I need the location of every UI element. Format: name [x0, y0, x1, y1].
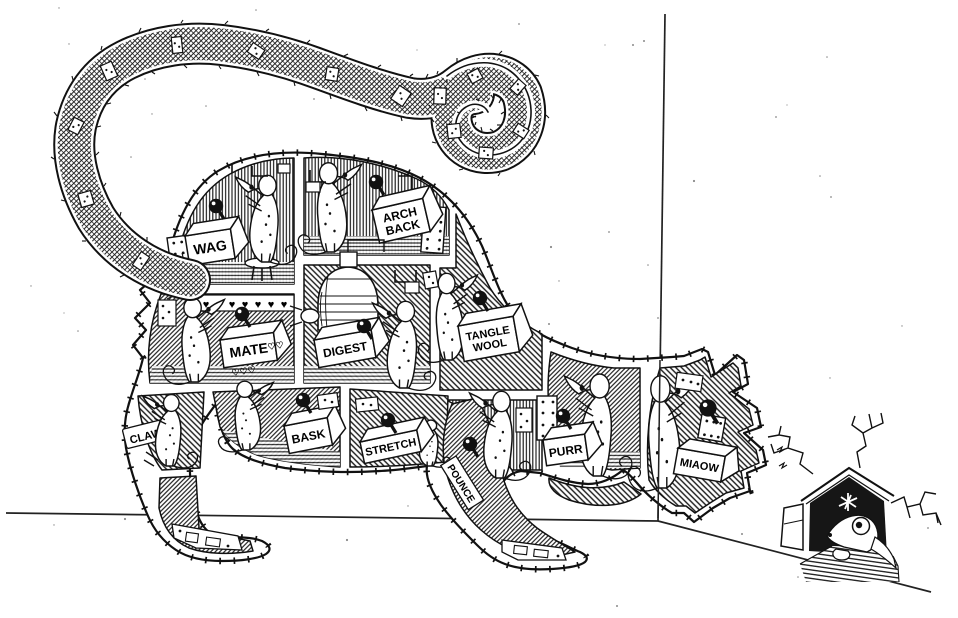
svg-text:♥: ♥	[268, 299, 275, 311]
svg-text:♥: ♥	[229, 299, 236, 311]
svg-text:♥: ♥	[281, 299, 288, 311]
svg-text:♥: ♥	[255, 299, 262, 311]
